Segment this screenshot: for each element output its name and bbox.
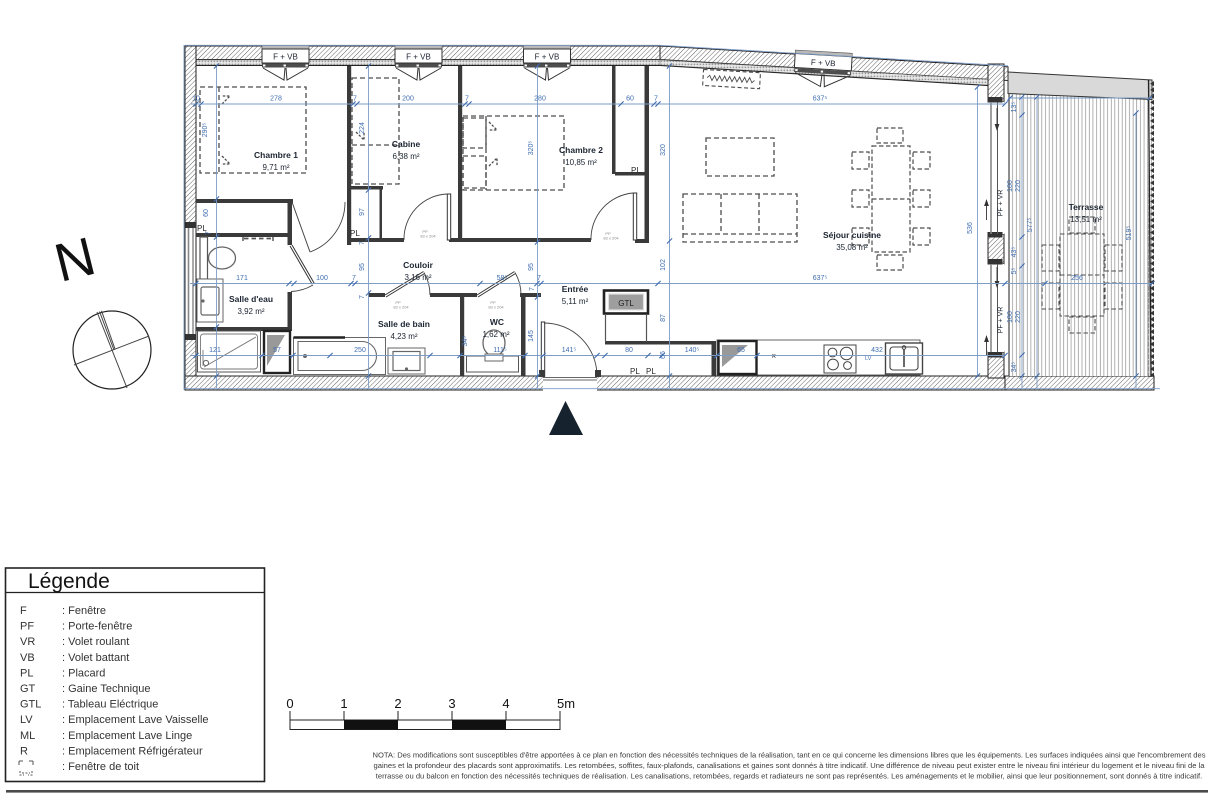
svg-text:7: 7 <box>465 96 469 103</box>
svg-text:10: 10 <box>192 96 200 103</box>
svg-text:60: 60 <box>626 96 634 103</box>
svg-text:97: 97 <box>359 208 366 216</box>
svg-text:: Volet battant: : Volet battant <box>62 652 129 664</box>
svg-text:PF + VR: PF + VR <box>998 307 1005 334</box>
svg-text:: Gaine Technique: : Gaine Technique <box>62 683 150 695</box>
svg-text:: Volet roulant: : Volet roulant <box>62 636 129 648</box>
svg-text:F + VB: F + VB <box>811 58 836 68</box>
svg-text:95: 95 <box>528 263 535 271</box>
svg-text:145: 145 <box>528 330 535 342</box>
svg-text:PF + VR: PF + VR <box>998 190 1005 217</box>
svg-text:PL: PL <box>20 667 33 679</box>
svg-text:Chambre 1: Chambre 1 <box>254 150 298 160</box>
svg-text:5,11 m²: 5,11 m² <box>562 297 589 306</box>
svg-text:GT: GT <box>20 683 36 695</box>
svg-text:PL: PL <box>630 367 640 376</box>
svg-text:141⁵: 141⁵ <box>562 347 577 354</box>
svg-text:VR: VR <box>20 636 35 648</box>
svg-text:GTL: GTL <box>20 699 41 711</box>
svg-text:F + VB: F + VB <box>406 53 431 62</box>
svg-text:34⁵: 34⁵ <box>462 336 469 347</box>
svg-text:280: 280 <box>534 96 546 103</box>
svg-text:: Emplacement Lave Linge: : Emplacement Lave Linge <box>62 730 192 742</box>
svg-text:87: 87 <box>660 314 667 322</box>
svg-text:250: 250 <box>354 347 366 354</box>
svg-text:PL: PL <box>631 166 641 175</box>
svg-text:100: 100 <box>316 275 328 282</box>
svg-text:83 x 204: 83 x 204 <box>393 305 409 310</box>
svg-text:LV: LV <box>865 356 872 362</box>
svg-text:7: 7 <box>359 241 366 245</box>
svg-text:95: 95 <box>359 263 366 271</box>
svg-text:gaines et la profondeur des pl: gaines et la profondeur des placards son… <box>374 761 1206 770</box>
svg-text:R: R <box>20 745 28 757</box>
svg-text:7: 7 <box>353 96 357 103</box>
svg-text:13⁵: 13⁵ <box>1011 102 1018 113</box>
svg-text:220: 220 <box>1015 311 1022 323</box>
svg-text:13,51 m²: 13,51 m² <box>1070 215 1102 224</box>
svg-text:140⁵: 140⁵ <box>685 347 700 354</box>
svg-text:180: 180 <box>1007 180 1014 192</box>
svg-text:7: 7 <box>537 275 541 282</box>
svg-text:PL: PL <box>350 229 360 238</box>
svg-text:Légende: Légende <box>28 570 110 593</box>
svg-text:Séjour cuisine: Séjour cuisine <box>823 230 881 240</box>
svg-text:: Emplacement Réfrigérateur: : Emplacement Réfrigérateur <box>62 745 203 757</box>
svg-text:NOTA: Des modifications sont s: NOTA: Des modifications sont susceptible… <box>372 751 1205 760</box>
svg-text:Couloir: Couloir <box>403 260 433 270</box>
svg-text:200: 200 <box>402 96 414 103</box>
svg-text:: Porte-fenêtre: : Porte-fenêtre <box>62 621 132 633</box>
svg-text:F: F <box>20 605 27 617</box>
svg-text:224: 224 <box>359 122 366 134</box>
svg-text:: Placard: : Placard <box>62 667 105 679</box>
svg-text:83 x 204: 83 x 204 <box>420 234 436 239</box>
svg-text:637⁵: 637⁵ <box>813 275 828 282</box>
svg-text:VB: VB <box>20 652 35 664</box>
svg-text:57: 57 <box>273 347 281 354</box>
svg-text:Salle de bain: Salle de bain <box>378 319 430 329</box>
svg-text:111⁵: 111⁵ <box>493 347 507 354</box>
svg-text:256: 256 <box>1071 275 1083 282</box>
svg-text:60: 60 <box>203 209 210 217</box>
svg-text:7: 7 <box>359 295 366 299</box>
svg-text:Chambre 2: Chambre 2 <box>559 145 603 155</box>
svg-text:F + VB: F + VB <box>273 53 298 62</box>
svg-text:Salle d'eau: Salle d'eau <box>229 294 273 304</box>
svg-text:83 x 204: 83 x 204 <box>488 305 504 310</box>
svg-text:290⁵: 290⁵ <box>202 123 209 138</box>
svg-text:536: 536 <box>967 222 974 234</box>
svg-text:5⁵: 5⁵ <box>1011 268 1018 275</box>
svg-text:102: 102 <box>660 259 667 271</box>
svg-text:320⁵: 320⁵ <box>528 141 535 156</box>
svg-text:F + VB: F + VB <box>535 53 560 62</box>
svg-text:7: 7 <box>529 287 536 291</box>
svg-text:9,71 m²: 9,71 m² <box>262 163 289 172</box>
svg-text:10,85 m²: 10,85 m² <box>565 158 597 167</box>
svg-text:terrasse ou du balcon en fonct: terrasse ou du balcon en fonction des né… <box>376 772 1203 781</box>
svg-text:80: 80 <box>625 347 633 354</box>
svg-text:7: 7 <box>205 231 212 235</box>
svg-text:: Fenêtre de toit: : Fenêtre de toit <box>62 761 139 773</box>
svg-text:7: 7 <box>352 275 356 282</box>
svg-text:58⁵: 58⁵ <box>497 275 508 282</box>
svg-text:3: 3 <box>448 696 455 711</box>
svg-text:PF: PF <box>20 621 34 633</box>
svg-text:WC: WC <box>490 317 504 327</box>
svg-text:180: 180 <box>1007 311 1014 323</box>
svg-text:Entrée: Entrée <box>562 284 589 294</box>
svg-text:5m: 5m <box>557 696 575 711</box>
svg-text:220: 220 <box>1015 180 1022 192</box>
svg-text:4,23 m²: 4,23 m² <box>390 332 417 341</box>
svg-text:PL: PL <box>646 367 656 376</box>
svg-text:: Tableau Eléctrique: : Tableau Eléctrique <box>62 699 158 711</box>
svg-text:7: 7 <box>654 96 658 103</box>
svg-text:34⁵: 34⁵ <box>1011 362 1018 373</box>
svg-text:LV: LV <box>20 714 33 726</box>
svg-text:519⁵: 519⁵ <box>1126 226 1133 241</box>
svg-text:577⁵: 577⁵ <box>1027 218 1034 233</box>
svg-text:278: 278 <box>270 96 282 103</box>
svg-text:1: 1 <box>340 696 347 711</box>
svg-text:ML: ML <box>20 730 35 742</box>
svg-text:35,08 m²: 35,08 m² <box>836 243 868 252</box>
svg-text:: Fenêtre: : Fenêtre <box>62 605 106 617</box>
svg-text:GTL: GTL <box>618 299 634 308</box>
svg-text:66: 66 <box>660 351 667 359</box>
svg-text:Cabine: Cabine <box>392 139 421 149</box>
svg-text:3,16 m²: 3,16 m² <box>404 273 431 282</box>
svg-text:R: R <box>772 354 776 360</box>
svg-text:1,62 m²: 1,62 m² <box>482 330 509 339</box>
svg-text:2: 2 <box>394 696 401 711</box>
svg-text:3,92 m²: 3,92 m² <box>237 307 264 316</box>
svg-text:4: 4 <box>502 696 509 711</box>
svg-text:6,38 m²: 6,38 m² <box>392 152 419 161</box>
svg-text:43⁵: 43⁵ <box>1011 247 1018 258</box>
svg-text:: Emplacement Lave Vaisselle: : Emplacement Lave Vaisselle <box>62 714 209 726</box>
svg-text:0: 0 <box>286 696 293 711</box>
svg-text:171: 171 <box>236 275 248 282</box>
svg-text:121: 121 <box>209 347 221 354</box>
svg-text:637⁵: 637⁵ <box>813 96 828 103</box>
svg-text:432: 432 <box>871 347 883 354</box>
svg-text:320: 320 <box>660 144 667 156</box>
svg-text:83 x 204: 83 x 204 <box>603 236 619 241</box>
svg-text:65: 65 <box>737 347 745 354</box>
svg-text:Terrasse: Terrasse <box>1069 202 1104 212</box>
